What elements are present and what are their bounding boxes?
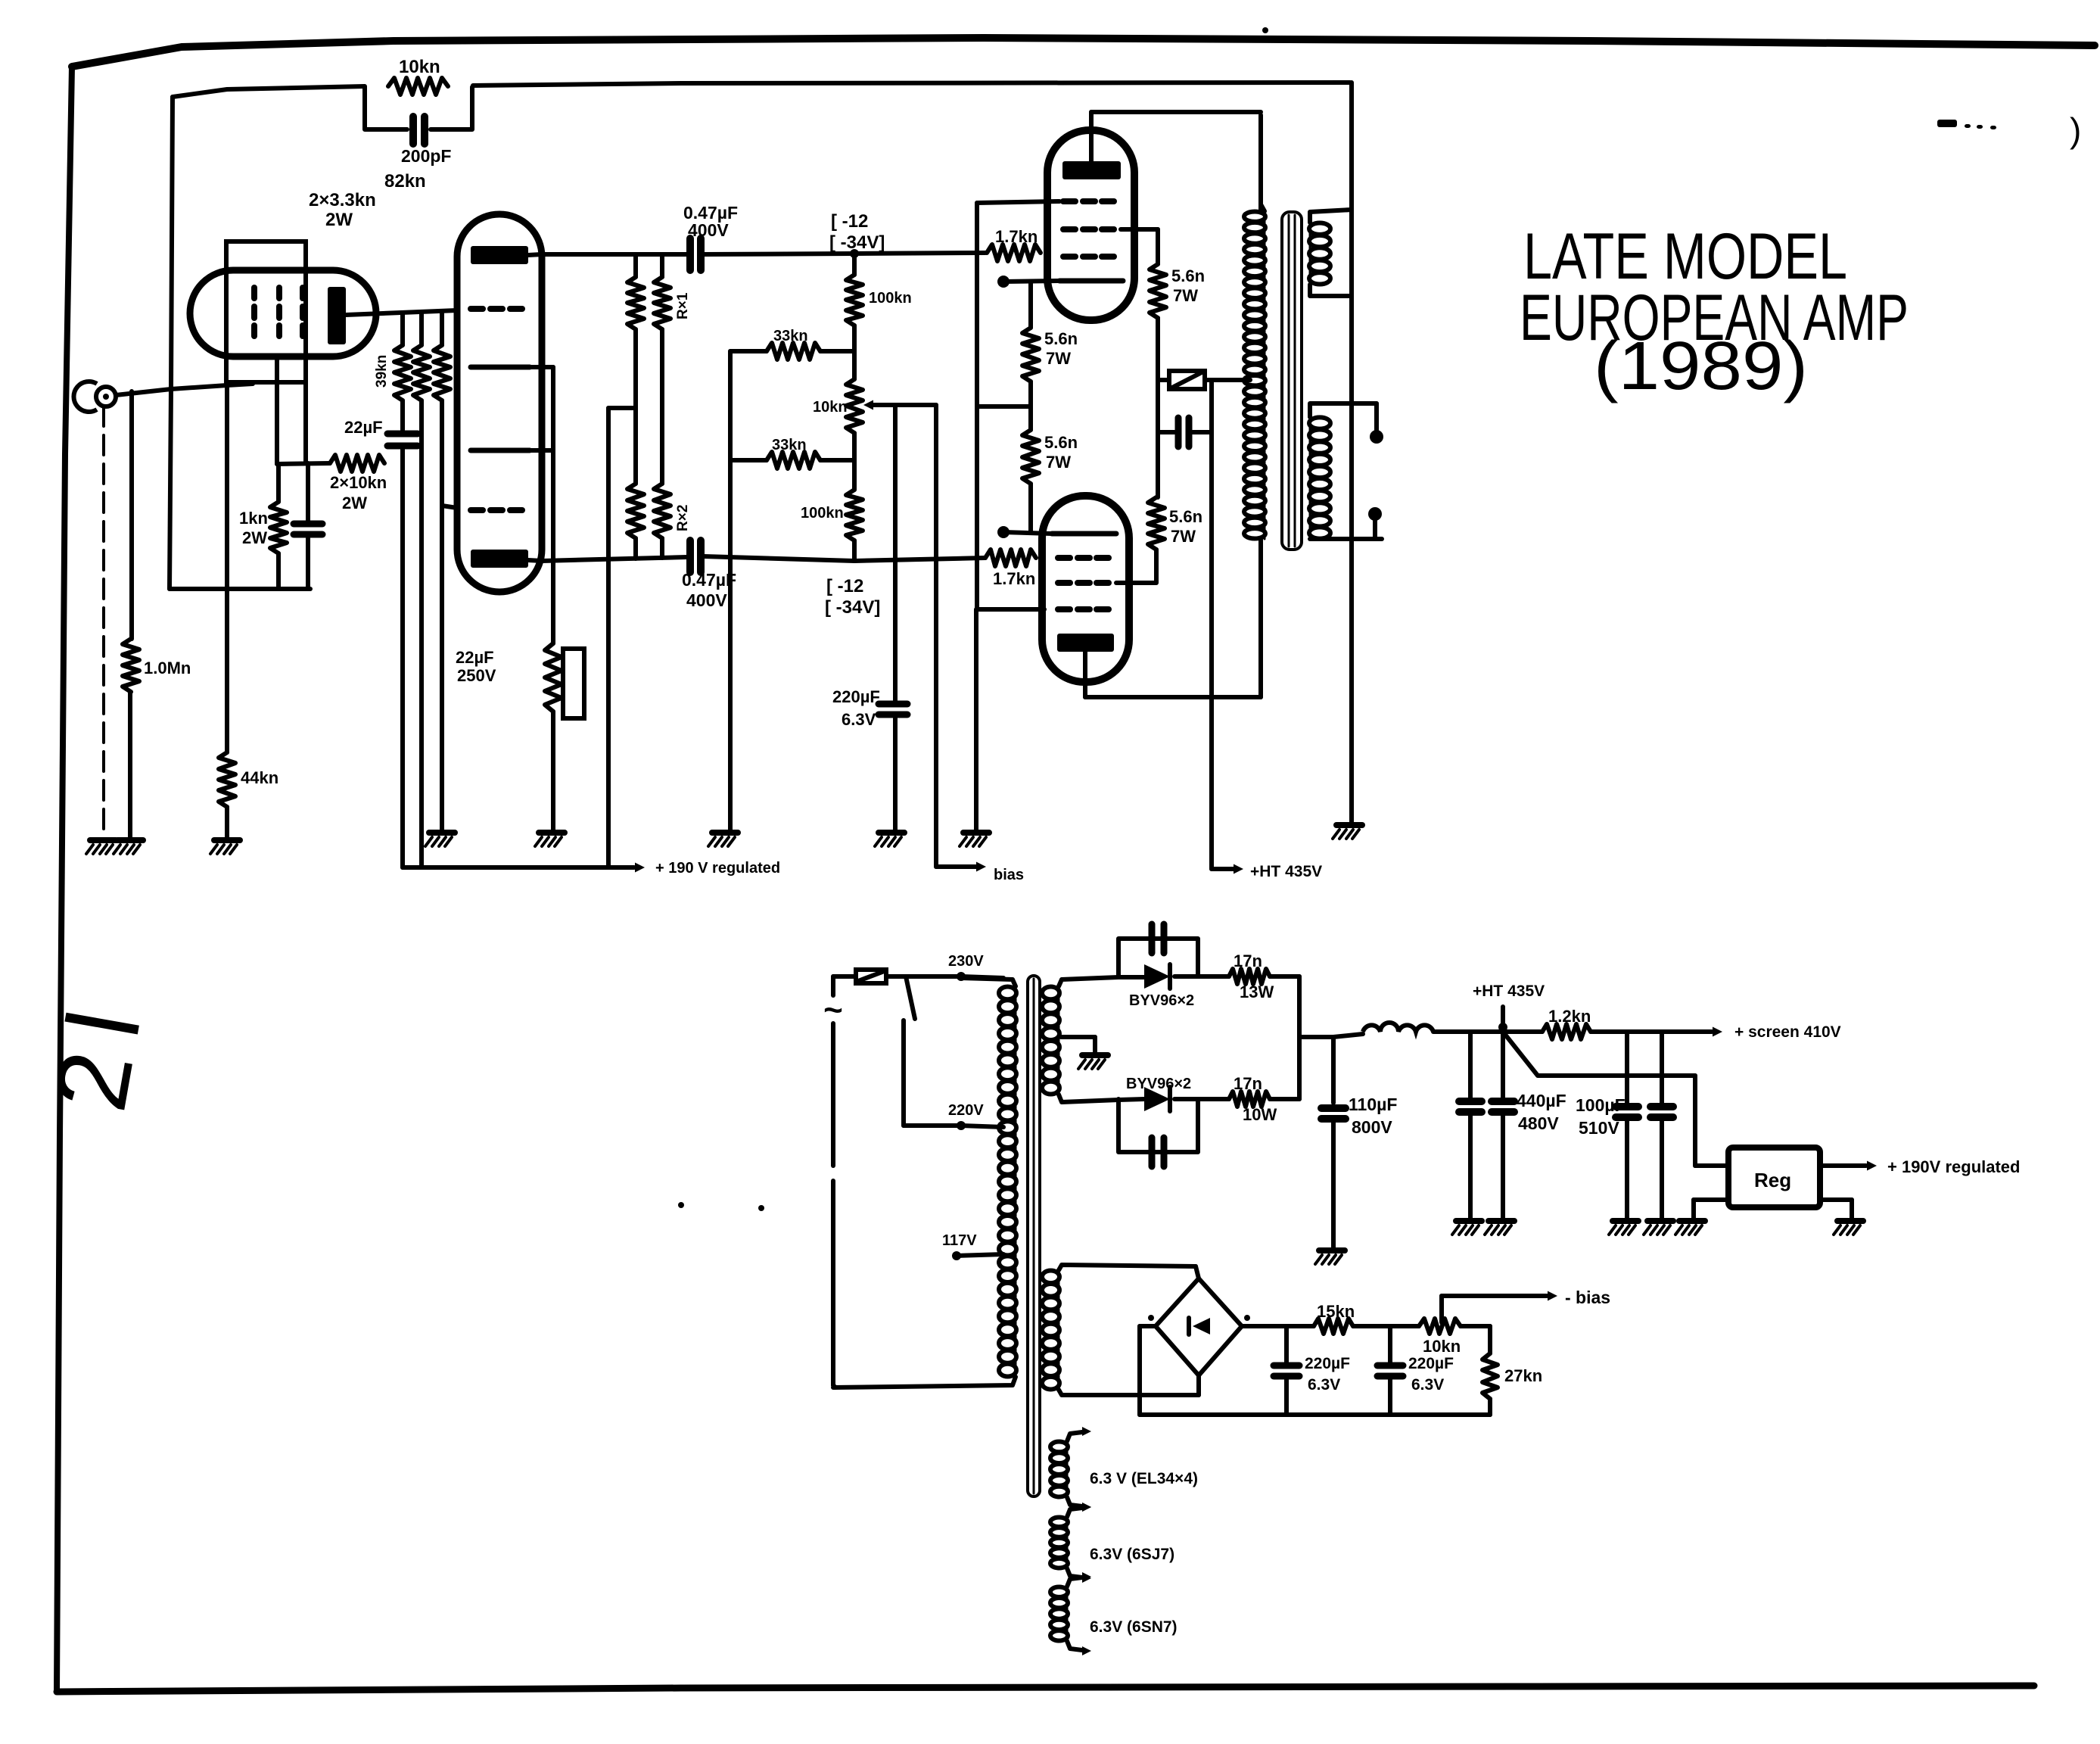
svg-text:510V: 510V xyxy=(1579,1118,1619,1138)
svg-text:+HT 435V: +HT 435V xyxy=(1473,983,1545,1000)
svg-text:2W: 2W xyxy=(342,494,367,512)
svg-text:17n: 17n xyxy=(1234,1074,1262,1093)
svg-text:R×2: R×2 xyxy=(675,505,691,531)
svg-text:100kn: 100kn xyxy=(869,290,912,307)
svg-text:22µF: 22µF xyxy=(456,648,494,667)
svg-text:100µF: 100µF xyxy=(1576,1095,1626,1115)
svg-text:220µF: 220µF xyxy=(832,687,880,706)
svg-text:33kn: 33kn xyxy=(772,437,807,453)
svg-text:33kn: 33kn xyxy=(773,328,808,344)
svg-text:7W: 7W xyxy=(1173,286,1198,305)
svg-text:2W: 2W xyxy=(325,210,353,230)
svg-text:[ -12: [ -12 xyxy=(831,211,868,232)
svg-text:220µF: 220µF xyxy=(1408,1355,1454,1372)
svg-text:- bias: - bias xyxy=(1565,1288,1610,1307)
svg-text:400V: 400V xyxy=(686,590,727,610)
svg-text:480V: 480V xyxy=(1518,1113,1559,1133)
svg-text:1.7kn: 1.7kn xyxy=(995,227,1038,246)
svg-text:7W: 7W xyxy=(1171,527,1196,546)
svg-text:6.3V: 6.3V xyxy=(842,710,876,729)
svg-text:6.3V (6SN7): 6.3V (6SN7) xyxy=(1090,1618,1178,1636)
svg-text:1.2kn: 1.2kn xyxy=(1548,1007,1591,1026)
svg-text:6.3V: 6.3V xyxy=(1411,1376,1444,1394)
svg-text:BYV96×2: BYV96×2 xyxy=(1129,992,1194,1009)
svg-text:10kn: 10kn xyxy=(813,399,848,416)
svg-text:5.6n: 5.6n xyxy=(1044,433,1078,452)
svg-text:440µF: 440µF xyxy=(1517,1091,1566,1110)
svg-text:800V: 800V xyxy=(1352,1117,1392,1137)
svg-text:117V: 117V xyxy=(942,1232,977,1249)
svg-text:(1989): (1989) xyxy=(1594,329,1808,404)
svg-text:39kn: 39kn xyxy=(374,355,390,388)
svg-text:[ -34V]: [ -34V] xyxy=(825,597,880,618)
svg-text:2l: 2l xyxy=(33,985,165,1119)
svg-text:+ 190 V regulated: + 190 V regulated xyxy=(655,860,780,877)
svg-text:6.3V (6SJ7): 6.3V (6SJ7) xyxy=(1090,1546,1174,1563)
svg-text:230V: 230V xyxy=(948,953,984,970)
svg-text:7W: 7W xyxy=(1046,453,1071,472)
svg-text:82kn: 82kn xyxy=(384,171,426,192)
svg-text:15kn: 15kn xyxy=(1317,1302,1355,1321)
svg-text:Reg: Reg xyxy=(1754,1169,1791,1191)
svg-text:27kn: 27kn xyxy=(1504,1366,1542,1385)
svg-text:[ -34V]: [ -34V] xyxy=(829,232,885,253)
svg-text:6.3 V (EL34×4): 6.3 V (EL34×4) xyxy=(1090,1470,1198,1487)
svg-text:5.6n: 5.6n xyxy=(1044,329,1078,348)
svg-text:bias: bias xyxy=(994,867,1024,883)
svg-text:400V: 400V xyxy=(688,220,729,240)
svg-text:1.7kn: 1.7kn xyxy=(993,569,1035,588)
svg-text:): ) xyxy=(2070,111,2081,150)
svg-text:+ screen 410V: + screen 410V xyxy=(1734,1023,1841,1041)
svg-text:10kn: 10kn xyxy=(1423,1337,1461,1356)
svg-text:BYV96×2: BYV96×2 xyxy=(1126,1076,1191,1092)
svg-text:5.6n: 5.6n xyxy=(1169,507,1202,526)
svg-text:+ 190V regulated: + 190V regulated xyxy=(1887,1157,2020,1176)
svg-text:7W: 7W xyxy=(1046,349,1071,368)
svg-text:R×1: R×1 xyxy=(675,292,691,319)
svg-text:1.0Mn: 1.0Mn xyxy=(144,659,191,677)
svg-text:1kn: 1kn xyxy=(239,509,268,528)
svg-text:[ -12: [ -12 xyxy=(826,576,863,596)
svg-text:2×10kn: 2×10kn xyxy=(330,473,387,492)
svg-text:17n: 17n xyxy=(1234,951,1262,970)
svg-text:220V: 220V xyxy=(948,1102,984,1119)
svg-text:10kn: 10kn xyxy=(399,57,440,77)
svg-text:250V: 250V xyxy=(457,666,496,685)
svg-text:22µF: 22µF xyxy=(344,418,383,437)
svg-text:6.3V: 6.3V xyxy=(1308,1376,1340,1394)
svg-text:2×3.3kn: 2×3.3kn xyxy=(309,190,376,210)
svg-text:5.6n: 5.6n xyxy=(1171,266,1205,285)
svg-text:200pF: 200pF xyxy=(401,146,451,166)
svg-text:110µF: 110µF xyxy=(1349,1095,1397,1114)
svg-text:100kn: 100kn xyxy=(801,505,844,522)
svg-text:220µF: 220µF xyxy=(1305,1355,1350,1372)
svg-text:10W: 10W xyxy=(1243,1105,1277,1124)
svg-text:2W: 2W xyxy=(242,528,267,547)
svg-text:44kn: 44kn xyxy=(241,768,278,787)
svg-text:13W: 13W xyxy=(1240,983,1274,1001)
svg-text:+HT 435V: +HT 435V xyxy=(1250,863,1322,880)
